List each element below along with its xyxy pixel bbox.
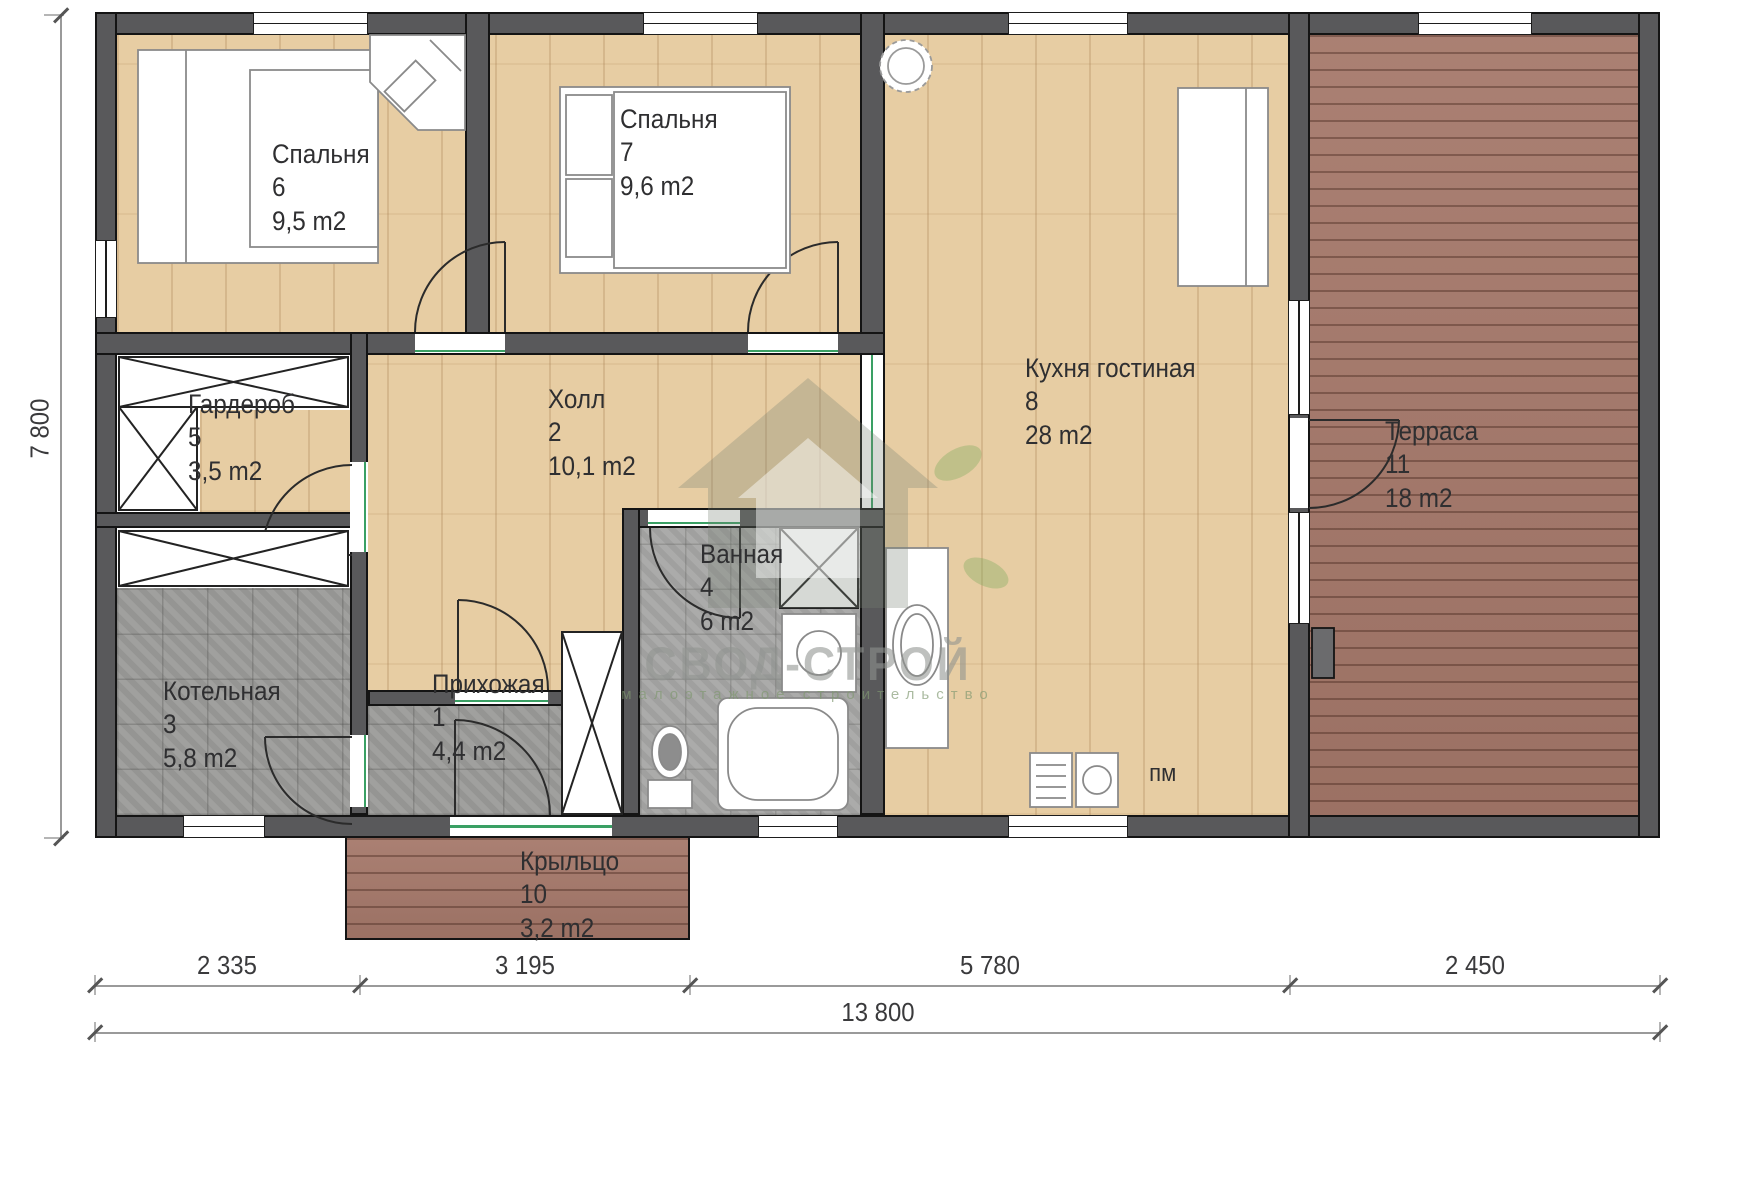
room-area: 10,1 m2 (548, 450, 636, 483)
kitchen-counter (886, 548, 948, 748)
room-number: 6 (272, 171, 370, 204)
terrace-planter (1312, 628, 1334, 678)
room-label-wardrobe: Гардероб 5 3,5 m2 (188, 388, 295, 488)
room-label-bathroom: Ванная 4 6 m2 (700, 538, 783, 638)
room-number: 2 (548, 416, 636, 449)
room-area: 5,8 m2 (163, 742, 281, 775)
room-number: 7 (620, 136, 718, 169)
desk-bedroom6 (370, 35, 465, 130)
dim-segment-2: 3 195 (461, 950, 590, 981)
sun-decor-icon (880, 40, 932, 92)
washing-machine-bathroom (782, 614, 856, 692)
room-area: 4,4 m2 (432, 735, 545, 768)
room-name: Холл (548, 383, 636, 416)
room-number: 1 (432, 701, 545, 734)
sofa-kitchen (1178, 88, 1268, 286)
room-number: 8 (1025, 385, 1196, 418)
room-name: Спальня (272, 138, 370, 171)
dim-line-left (60, 15, 62, 838)
room-name: Кухня гостиная (1025, 352, 1196, 385)
dim-bottom-total: 13 800 (814, 997, 943, 1028)
hallway-wardrobe-cabinet (562, 632, 622, 814)
room-name: Терраса (1385, 415, 1478, 448)
room-area: 3,5 m2 (188, 455, 295, 488)
room-name: Ванная (700, 538, 783, 571)
dim-left-total: 7 800 (25, 364, 56, 493)
room-number: 4 (700, 571, 783, 604)
room-label-bedroom7: Спальня 7 9,6 m2 (620, 103, 718, 203)
room-name: Спальня (620, 103, 718, 136)
room-label-kitchen: Кухня гостиная 8 28 m2 (1025, 352, 1196, 452)
dim-segment-1: 2 335 (163, 950, 292, 981)
bathroom-cabinet (780, 528, 858, 608)
dim-segment-4: 2 450 (1411, 950, 1540, 981)
room-label-terrace: Терраса 11 18 m2 (1385, 415, 1478, 515)
bathtub (718, 698, 848, 810)
room-number: 3 (163, 708, 281, 741)
room-label-bedroom6: Спальня 6 9,5 m2 (272, 138, 370, 238)
room-name: Крыльцо (520, 845, 619, 878)
room-label-boiler: Котельная 3 5,8 m2 (163, 675, 281, 775)
dim-line-bottom-segments (95, 985, 1660, 987)
room-name: Гардероб (188, 388, 295, 421)
room-area: 3,2 m2 (520, 912, 619, 945)
dim-line-bottom-total (95, 1032, 1660, 1034)
room-area: 6 m2 (700, 605, 783, 638)
room-number: 11 (1385, 448, 1478, 481)
room-label-hall: Холл 2 10,1 m2 (548, 383, 636, 483)
floor-plan: СВОД-СТРОЙ малоэтажное строительство Спа… (0, 0, 1755, 1182)
room-number: 5 (188, 421, 295, 454)
dishwasher-annotation: пм (1149, 760, 1176, 788)
dim-segment-3: 5 780 (926, 950, 1055, 981)
room-number: 10 (520, 878, 619, 911)
room-name: Котельная (163, 675, 281, 708)
room-area: 9,5 m2 (272, 205, 370, 238)
wardrobe-shelf-left (119, 407, 197, 510)
boiler-shelf (119, 531, 348, 586)
dishwasher (1030, 753, 1072, 807)
washing-machine-kitchen (1076, 753, 1118, 807)
toilet (648, 726, 692, 808)
door-arc-bedroom6 (415, 242, 505, 332)
room-area: 28 m2 (1025, 419, 1196, 452)
room-area: 9,6 m2 (620, 170, 718, 203)
room-label-porch: Крыльцо 10 3,2 m2 (520, 845, 619, 945)
room-name: Прихожая (432, 668, 545, 701)
room-area: 18 m2 (1385, 482, 1478, 515)
room-label-hallway: Прихожая 1 4,4 m2 (432, 668, 545, 768)
